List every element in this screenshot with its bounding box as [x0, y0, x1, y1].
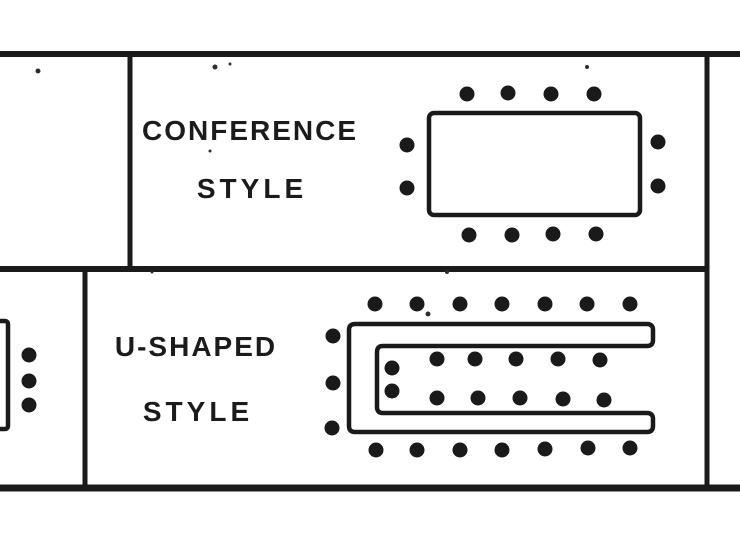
seat-dot — [581, 441, 596, 456]
seat-dot — [587, 87, 602, 102]
seat-dot — [623, 441, 638, 456]
seat-dot — [538, 297, 553, 312]
scan-speck — [426, 312, 431, 317]
seat-dot — [453, 443, 468, 458]
seat-dot — [430, 352, 445, 367]
seat-dot — [400, 138, 415, 153]
seat-dot — [623, 297, 638, 312]
conference-style-label-line2: STYLE — [197, 173, 307, 205]
seat-dot — [538, 442, 553, 457]
u-shaped-style-label-line1: U-SHAPED — [115, 331, 277, 363]
u-shaped-style-label-line2: STYLE — [143, 396, 253, 428]
seat-dot — [325, 421, 340, 436]
seat-dot — [410, 297, 425, 312]
seat-dot — [580, 297, 595, 312]
seat-dot — [385, 361, 400, 376]
seat-dot — [651, 135, 666, 150]
scan-speck — [229, 63, 232, 66]
seat-dot — [368, 297, 383, 312]
scan-speck — [151, 271, 154, 274]
seat-dot — [651, 179, 666, 194]
seat-dot — [468, 352, 483, 367]
seat-dot — [589, 227, 604, 242]
seat-dot — [326, 376, 341, 391]
seat-dot — [471, 391, 486, 406]
scanned-seating-styles-diagram: CONFERENCE STYLE U-SHAPED STYLE — [0, 0, 740, 550]
u-shaped-table — [349, 324, 653, 432]
seat-dot — [495, 443, 510, 458]
seat-dot — [495, 297, 510, 312]
seat-dot — [505, 228, 520, 243]
seat-dot — [597, 393, 612, 408]
seat-dot — [326, 329, 341, 344]
seat-dot — [509, 352, 524, 367]
conference-table — [429, 113, 640, 215]
seat-dot — [385, 384, 400, 399]
scan-speck — [585, 65, 589, 69]
seat-dot — [513, 391, 528, 406]
seat-dot — [462, 228, 477, 243]
seat-dot — [410, 443, 425, 458]
seat-dot — [556, 392, 571, 407]
adjacent-table-partial — [0, 321, 8, 429]
seat-dot — [430, 391, 445, 406]
seat-dot — [22, 398, 37, 413]
seat-dot — [546, 227, 561, 242]
seat-dot — [460, 87, 475, 102]
scan-speck — [213, 65, 218, 70]
seat-dot — [22, 374, 37, 389]
scan-speck — [36, 69, 41, 74]
scan-speck — [445, 270, 449, 274]
seat-dot — [400, 181, 415, 196]
scan-speck — [209, 150, 212, 153]
seat-dot — [593, 353, 608, 368]
seat-dot — [453, 297, 468, 312]
seat-dot — [501, 86, 516, 101]
seat-dot — [22, 348, 37, 363]
conference-style-label-line1: CONFERENCE — [142, 115, 358, 147]
floor-plan-linework — [0, 0, 740, 550]
seat-dot — [369, 443, 384, 458]
seat-dot — [544, 87, 559, 102]
seat-dot — [551, 352, 566, 367]
